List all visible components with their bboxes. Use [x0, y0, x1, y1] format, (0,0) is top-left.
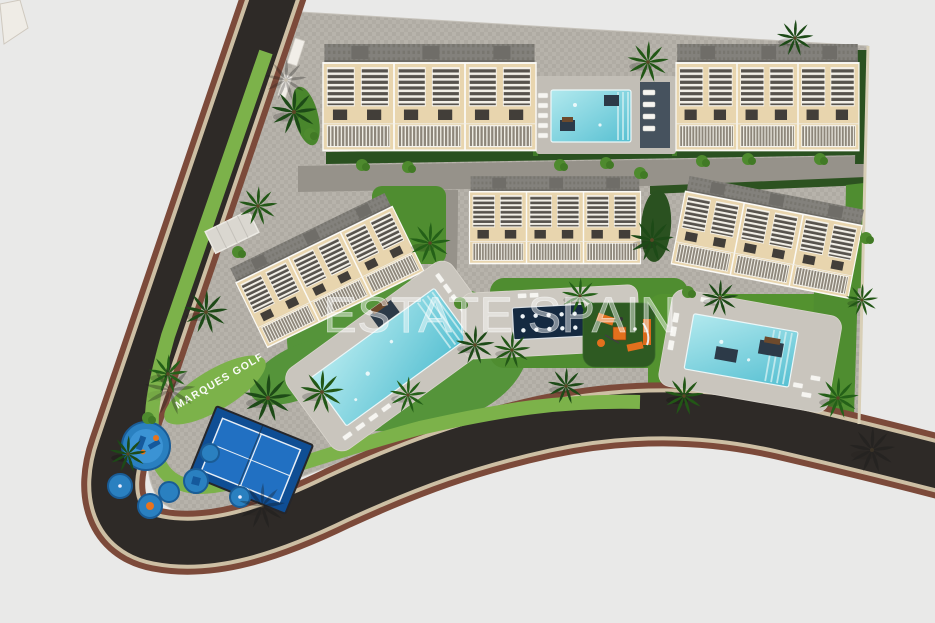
splash-structure: [153, 435, 159, 441]
lounger: [538, 133, 548, 138]
splash-pad: [201, 444, 219, 462]
site-plan-render: MARQUES GOLF: [0, 0, 935, 623]
water-sparkle: [598, 123, 601, 126]
apartment-block-4: [470, 176, 641, 263]
pool-north: [536, 76, 676, 154]
sunbed: [604, 95, 619, 106]
lounger: [538, 93, 548, 98]
watermark: ESTATE SPAIN: [323, 287, 676, 343]
lounger: [643, 114, 655, 119]
lounger: [643, 90, 655, 95]
lounger: [538, 123, 548, 128]
lounger: [643, 126, 655, 131]
splash-structure: [146, 502, 154, 510]
water-sparkle: [573, 103, 577, 107]
sunbed: [562, 117, 573, 122]
lounger: [538, 103, 548, 108]
lounger: [643, 102, 655, 107]
splash-detail: [118, 484, 122, 488]
apartment-block-2: [676, 44, 859, 150]
splash-pad: [159, 482, 179, 502]
lounger: [538, 113, 548, 118]
apartment-block-1: [323, 44, 536, 150]
render-canvas: MARQUES GOLF: [0, 0, 935, 623]
splash-detail: [238, 495, 242, 499]
